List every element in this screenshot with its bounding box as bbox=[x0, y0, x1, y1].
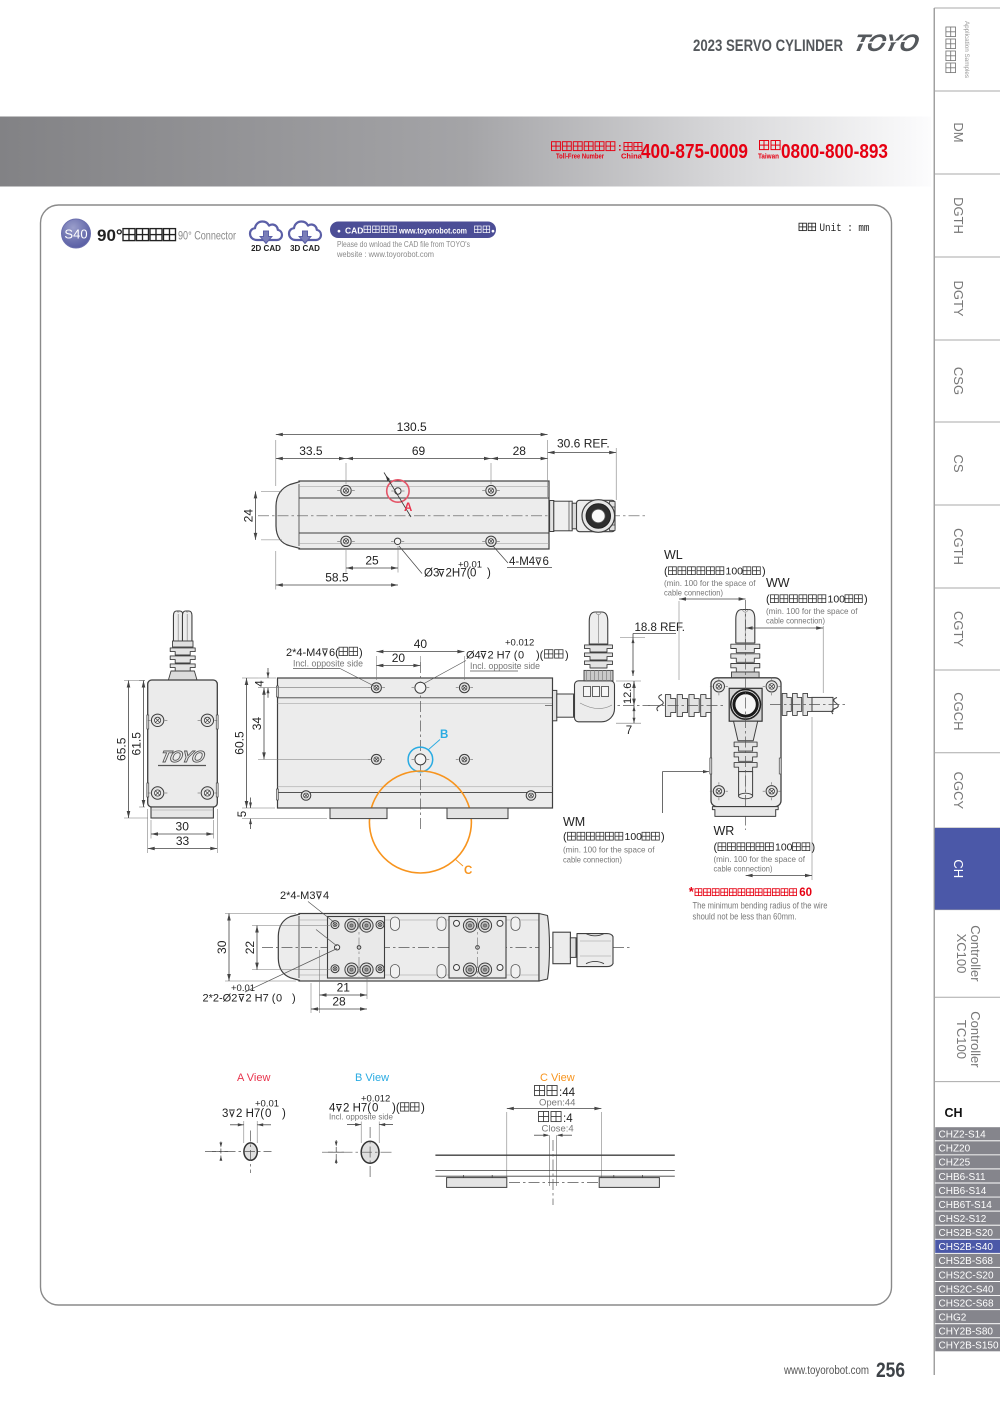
svg-text:CHZ2-S14: CHZ2-S14 bbox=[939, 1130, 987, 1141]
svg-text:256: 256 bbox=[876, 1358, 905, 1382]
svg-text:Controller: Controller bbox=[968, 1011, 983, 1068]
svg-text:4-M4: 4-M4 bbox=[509, 556, 536, 568]
svg-text:100: 100 bbox=[625, 831, 643, 843]
svg-text:(min. 100 for the space of: (min. 100 for the space of bbox=[714, 854, 806, 864]
svg-text:58.5: 58.5 bbox=[325, 571, 349, 585]
svg-text:33.5: 33.5 bbox=[299, 444, 323, 458]
svg-text:0800-800-893: 0800-800-893 bbox=[781, 141, 888, 163]
svg-text:CS: CS bbox=[951, 454, 966, 472]
svg-text:Application Samples: Application Samples bbox=[963, 21, 970, 78]
svg-text:CHS2C-S68: CHS2C-S68 bbox=[939, 1298, 994, 1309]
svg-text:2023 SERVO CYLINDER: 2023 SERVO CYLINDER bbox=[693, 37, 843, 55]
svg-text:CHY2B-S80: CHY2B-S80 bbox=[939, 1327, 994, 1338]
svg-text:cable connection): cable connection) bbox=[664, 588, 723, 598]
svg-text:40: 40 bbox=[414, 637, 428, 651]
svg-text:Ø4: Ø4 bbox=[466, 650, 481, 662]
svg-text:90° Connector: 90° Connector bbox=[178, 231, 236, 243]
svg-text:●: ● bbox=[337, 228, 341, 235]
svg-text:Close:4: Close:4 bbox=[542, 1124, 574, 1135]
svg-text:Taiwan: Taiwan bbox=[758, 152, 779, 161]
svg-text:cable connection): cable connection) bbox=[563, 855, 622, 865]
svg-text:CHB6-S11: CHB6-S11 bbox=[939, 1172, 986, 1183]
svg-text:CHS2C-S40: CHS2C-S40 bbox=[939, 1284, 994, 1295]
svg-text:TC100: TC100 bbox=[954, 1020, 969, 1059]
svg-text:25: 25 bbox=[365, 554, 379, 568]
svg-text:C: C bbox=[464, 865, 472, 877]
svg-text:(: ( bbox=[563, 831, 567, 843]
svg-text:CHG2: CHG2 bbox=[939, 1313, 967, 1324]
svg-text:0: 0 bbox=[265, 1108, 271, 1120]
svg-text:Incl. opposite side: Incl. opposite side bbox=[329, 1112, 393, 1122]
svg-text:Ø3: Ø3 bbox=[424, 568, 439, 580]
svg-text:Open:44: Open:44 bbox=[539, 1098, 575, 1109]
svg-text:3D CAD: 3D CAD bbox=[290, 244, 320, 253]
svg-text:DM: DM bbox=[951, 122, 966, 142]
svg-text:): ) bbox=[661, 831, 665, 843]
svg-text:cable connection): cable connection) bbox=[766, 616, 825, 626]
svg-text:CH: CH bbox=[951, 859, 966, 878]
svg-text:20: 20 bbox=[392, 651, 406, 665]
svg-text:CHB6T-S14: CHB6T-S14 bbox=[939, 1200, 993, 1211]
svg-text:18.8 REF.: 18.8 REF. bbox=[635, 622, 686, 634]
svg-text:(min. 100 for the space of: (min. 100 for the space of bbox=[563, 845, 655, 855]
svg-text:100: 100 bbox=[775, 842, 793, 854]
svg-text:): ) bbox=[487, 568, 491, 580]
svg-text:(: ( bbox=[766, 594, 770, 606]
svg-text:2 H7 (: 2 H7 ( bbox=[246, 993, 276, 1005]
svg-text:CHZ25: CHZ25 bbox=[939, 1158, 971, 1169]
svg-text:CGCH: CGCH bbox=[951, 692, 966, 730]
svg-text:(: ( bbox=[664, 566, 668, 578]
svg-text:cable connection): cable connection) bbox=[714, 864, 773, 874]
svg-text:130.5: 130.5 bbox=[397, 420, 427, 434]
svg-text:6: 6 bbox=[543, 556, 549, 568]
svg-text:CGCY: CGCY bbox=[951, 772, 966, 810]
svg-text:2*4-M4: 2*4-M4 bbox=[286, 647, 321, 659]
svg-text:2*4-M3: 2*4-M3 bbox=[280, 890, 315, 902]
svg-text:30: 30 bbox=[176, 820, 190, 834]
svg-text:(min. 100 for the space of: (min. 100 for the space of bbox=[766, 606, 858, 616]
svg-text:www.toyorobot.com: www.toyorobot.com bbox=[783, 1365, 869, 1377]
svg-text:)(: )( bbox=[536, 650, 544, 662]
svg-text:Incl. opposite side: Incl. opposite side bbox=[293, 659, 363, 669]
svg-text:): ) bbox=[565, 650, 569, 662]
svg-text:CHY2B-S150: CHY2B-S150 bbox=[939, 1341, 999, 1352]
svg-text:): ) bbox=[421, 1103, 425, 1115]
svg-text:4: 4 bbox=[323, 890, 329, 902]
svg-text:2*2-Ø2: 2*2-Ø2 bbox=[203, 993, 238, 1005]
svg-text:Controller: Controller bbox=[968, 925, 983, 982]
svg-text:B View: B View bbox=[355, 1072, 389, 1084]
svg-text:5: 5 bbox=[237, 811, 249, 817]
svg-text:60.5: 60.5 bbox=[233, 731, 247, 755]
svg-text:(min. 100 for the space of: (min. 100 for the space of bbox=[664, 578, 756, 588]
svg-text:): ) bbox=[282, 1108, 286, 1120]
svg-text:3: 3 bbox=[222, 1108, 228, 1120]
svg-text:30: 30 bbox=[215, 940, 229, 954]
svg-text:CAD: CAD bbox=[345, 226, 363, 236]
svg-text:CGTH: CGTH bbox=[951, 528, 966, 565]
svg-text:CHS2C-S20: CHS2C-S20 bbox=[939, 1270, 994, 1281]
svg-text:28: 28 bbox=[332, 995, 346, 1009]
svg-text:DGTH: DGTH bbox=[951, 197, 966, 234]
svg-text:CHS2B-S20: CHS2B-S20 bbox=[939, 1228, 994, 1239]
svg-text:TOYO: TOYO bbox=[851, 30, 922, 57]
svg-text:CHS2B-S68: CHS2B-S68 bbox=[939, 1256, 994, 1267]
svg-text:A: A bbox=[404, 502, 412, 514]
svg-text:WM: WM bbox=[563, 815, 585, 829]
svg-text:CGTY: CGTY bbox=[951, 611, 966, 647]
svg-text:100: 100 bbox=[828, 594, 846, 606]
svg-text:C View: C View bbox=[540, 1072, 575, 1084]
svg-text:S40: S40 bbox=[64, 227, 87, 242]
svg-text:): ) bbox=[359, 647, 363, 659]
svg-text:30.6 REF.: 30.6 REF. bbox=[557, 437, 610, 451]
svg-text:12.6: 12.6 bbox=[622, 683, 634, 704]
svg-text:Unit : mm: Unit : mm bbox=[820, 223, 870, 235]
svg-text:69: 69 bbox=[412, 444, 426, 458]
svg-text:CSG: CSG bbox=[951, 367, 966, 395]
svg-text:2 H7 (: 2 H7 ( bbox=[488, 650, 518, 662]
svg-text:6(: 6( bbox=[329, 647, 339, 659]
svg-text:A View: A View bbox=[237, 1072, 270, 1084]
svg-text:CHS2-S12: CHS2-S12 bbox=[939, 1214, 987, 1225]
svg-text:+0.012: +0.012 bbox=[505, 638, 534, 649]
svg-text:website : www.toyorobot.com: website : www.toyorobot.com bbox=[336, 249, 434, 259]
svg-text:should not be less than 60mm.: should not be less than 60mm. bbox=[693, 912, 797, 922]
svg-text:21: 21 bbox=[337, 981, 351, 995]
svg-text:28: 28 bbox=[513, 444, 527, 458]
svg-text:CHZ20: CHZ20 bbox=[939, 1144, 971, 1155]
svg-text:60: 60 bbox=[799, 887, 812, 899]
svg-text:2H7(: 2H7( bbox=[446, 568, 471, 580]
svg-text:4: 4 bbox=[255, 680, 267, 687]
svg-text:)(: )( bbox=[392, 1103, 400, 1115]
svg-text:90°: 90° bbox=[97, 226, 123, 245]
svg-text:WR: WR bbox=[714, 824, 735, 838]
svg-text:0: 0 bbox=[276, 993, 282, 1005]
svg-text:B: B bbox=[440, 729, 448, 741]
svg-text:100: 100 bbox=[726, 566, 744, 578]
svg-text:Please do wnload the CAD file: Please do wnload the CAD file from TOYO'… bbox=[337, 239, 470, 249]
svg-text:2 H7(: 2 H7( bbox=[236, 1108, 264, 1120]
svg-text:33: 33 bbox=[176, 834, 190, 848]
svg-text:●: ● bbox=[491, 228, 495, 235]
svg-text:www.toyorobot.com: www.toyorobot.com bbox=[398, 227, 467, 236]
svg-text:400-875-0009: 400-875-0009 bbox=[641, 141, 748, 163]
svg-text:): ) bbox=[864, 594, 868, 606]
svg-text:CH: CH bbox=[945, 1106, 963, 1120]
svg-text:Incl. opposite side: Incl. opposite side bbox=[470, 661, 540, 671]
svg-text:): ) bbox=[292, 993, 296, 1005]
svg-text:DGTY: DGTY bbox=[951, 280, 966, 316]
svg-text:XC100: XC100 bbox=[954, 934, 969, 974]
svg-text:7: 7 bbox=[626, 725, 632, 737]
svg-text:CHS2B-S40: CHS2B-S40 bbox=[939, 1242, 994, 1253]
svg-text:0: 0 bbox=[470, 568, 476, 580]
svg-text:24: 24 bbox=[242, 509, 256, 523]
svg-text:WW: WW bbox=[766, 576, 790, 590]
svg-text:China: China bbox=[621, 152, 643, 161]
svg-text:0: 0 bbox=[518, 650, 524, 662]
svg-text:2D CAD: 2D CAD bbox=[251, 244, 281, 253]
svg-text:(: ( bbox=[714, 842, 718, 854]
svg-text:The minimum bending radius of: The minimum bending radius of the wire bbox=[693, 901, 828, 911]
svg-text:34: 34 bbox=[250, 717, 264, 731]
svg-text:WL: WL bbox=[664, 548, 683, 562]
svg-text:Toll-Free Number: Toll-Free Number bbox=[556, 152, 604, 161]
svg-text:TOYO: TOYO bbox=[159, 748, 207, 766]
svg-text:61.5: 61.5 bbox=[130, 732, 144, 756]
svg-text:22: 22 bbox=[243, 941, 257, 955]
svg-text:65.5: 65.5 bbox=[115, 737, 129, 761]
svg-text:CHB6-S14: CHB6-S14 bbox=[939, 1186, 987, 1197]
